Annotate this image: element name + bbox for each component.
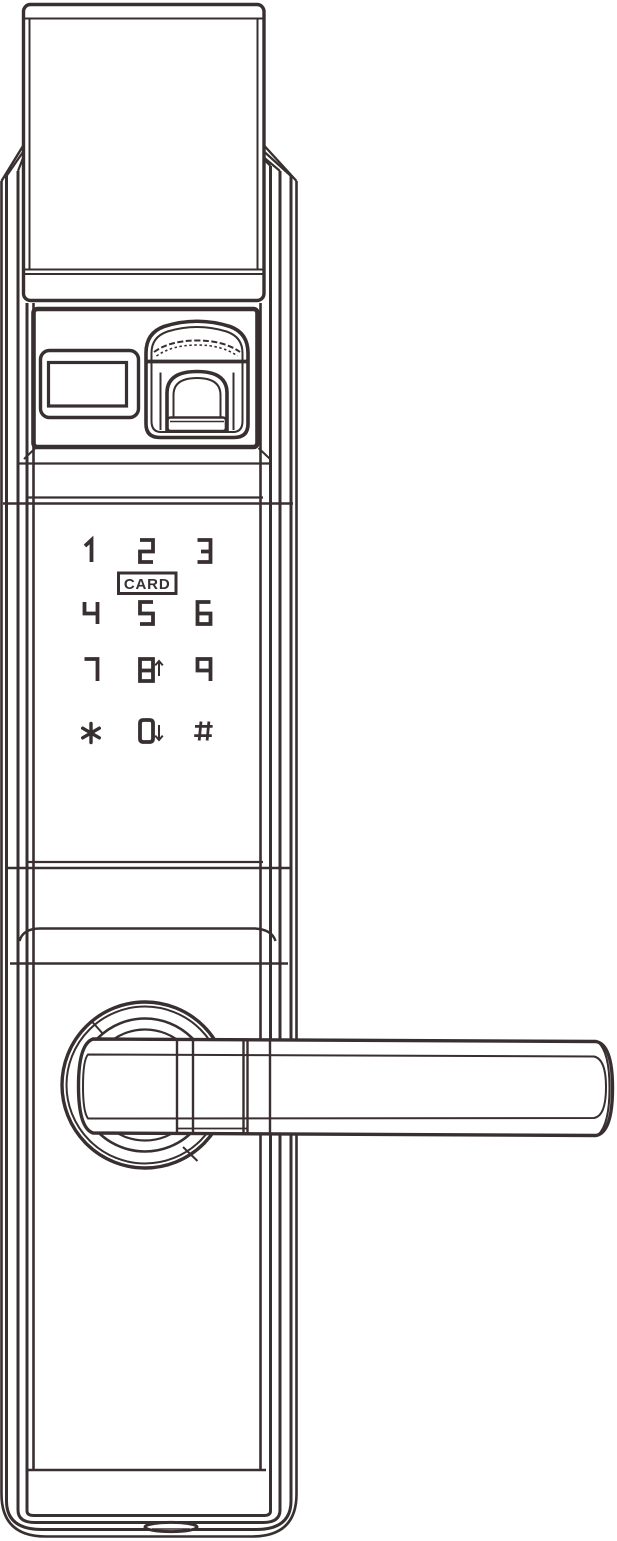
card-tap-zone[interactable]: CARD: [119, 573, 177, 594]
sensor-panel: [34, 309, 258, 447]
door-handle-lever[interactable]: [79, 1039, 613, 1136]
door-lock-drawing: CARD: [0, 0, 617, 1541]
key-8[interactable]: [126, 648, 168, 692]
key-5[interactable]: [126, 591, 168, 635]
key-4[interactable]: [70, 591, 112, 635]
bottom-port: [145, 1522, 197, 1531]
key-#[interactable]: [183, 709, 225, 753]
key-3[interactable]: [183, 529, 225, 573]
numeric-keypad: CARD: [70, 529, 225, 753]
key-6[interactable]: [183, 591, 225, 635]
key-2[interactable]: [126, 529, 168, 573]
door-lock-line-drawing: CARD: [0, 0, 617, 1541]
key-0[interactable]: [126, 709, 168, 753]
top-cover: [24, 5, 265, 301]
key-7[interactable]: [70, 648, 112, 692]
key-1[interactable]: [70, 529, 112, 573]
card-label: CARD: [124, 576, 171, 593]
key-9[interactable]: [183, 648, 225, 692]
key-*[interactable]: [70, 709, 112, 753]
